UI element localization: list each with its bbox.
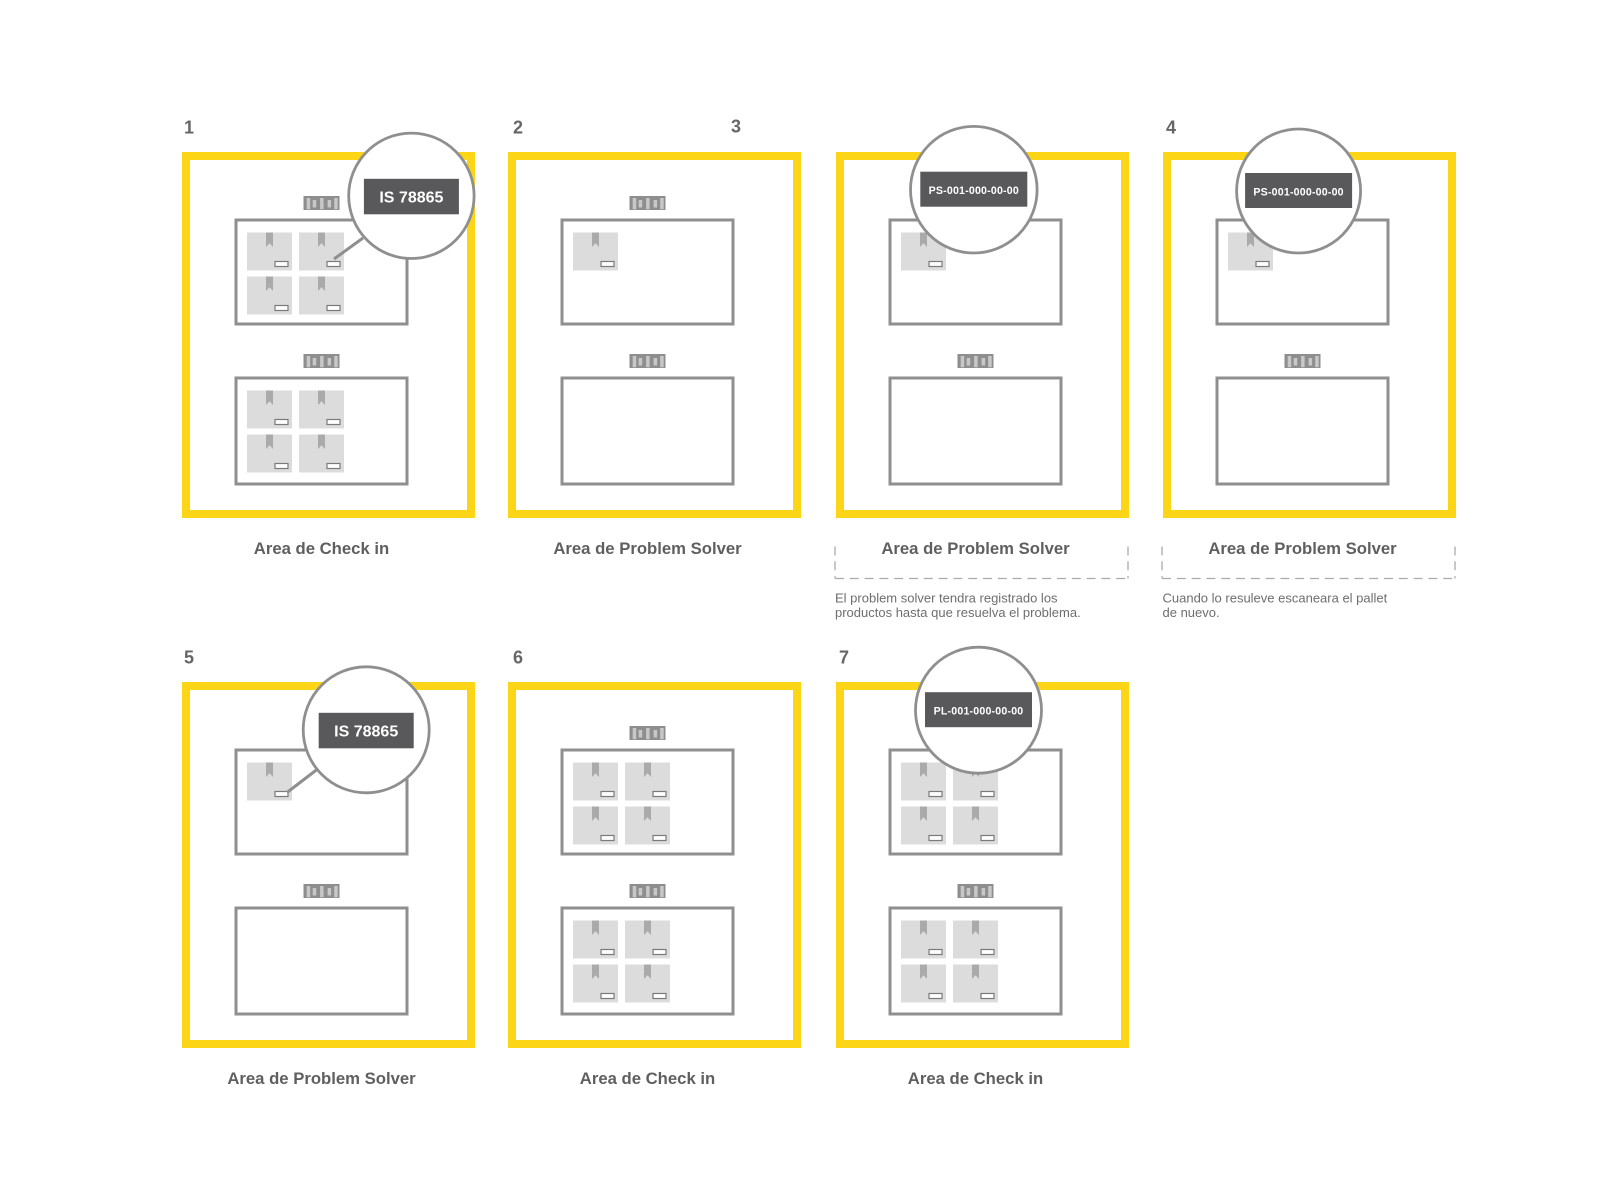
svg-text:4: 4 [1166,118,1176,138]
svg-text:6: 6 [513,648,523,668]
svg-text:3: 3 [731,117,741,137]
svg-text:PL-001-000-00-00: PL-001-000-00-00 [934,706,1024,718]
svg-text:IS 78865: IS 78865 [334,723,398,740]
svg-text:Area de Problem Solver: Area de Problem Solver [881,539,1070,558]
svg-text:Area de Problem Solver: Area de Problem Solver [1208,539,1397,558]
svg-text:Area de Problem Solver: Area de Problem Solver [227,1069,416,1088]
svg-text:PS-001-000-00-00: PS-001-000-00-00 [929,185,1019,197]
svg-text:Cuando lo resuleve escaneara e: Cuando lo resuleve escaneara el pallet [1163,591,1388,606]
svg-text:IS 78865: IS 78865 [379,189,443,206]
svg-text:1: 1 [184,118,194,138]
svg-text:Area de Check in: Area de Check in [908,1069,1043,1088]
svg-text:2: 2 [513,118,523,138]
svg-text:de nuevo.: de nuevo. [1163,605,1220,620]
svg-text:7: 7 [839,648,849,668]
svg-text:PS-001-000-00-00: PS-001-000-00-00 [1253,186,1343,198]
svg-text:5: 5 [184,648,194,668]
svg-text:Area de Problem Solver: Area de Problem Solver [553,539,742,558]
svg-text:productos hasta que resuelva e: productos hasta que resuelva el problema… [835,605,1081,620]
svg-text:Area de Check in: Area de Check in [254,539,389,558]
svg-text:El problem solver tendra regis: El problem solver tendra registrado los [835,591,1058,606]
svg-text:Area de Check in: Area de Check in [580,1069,715,1088]
